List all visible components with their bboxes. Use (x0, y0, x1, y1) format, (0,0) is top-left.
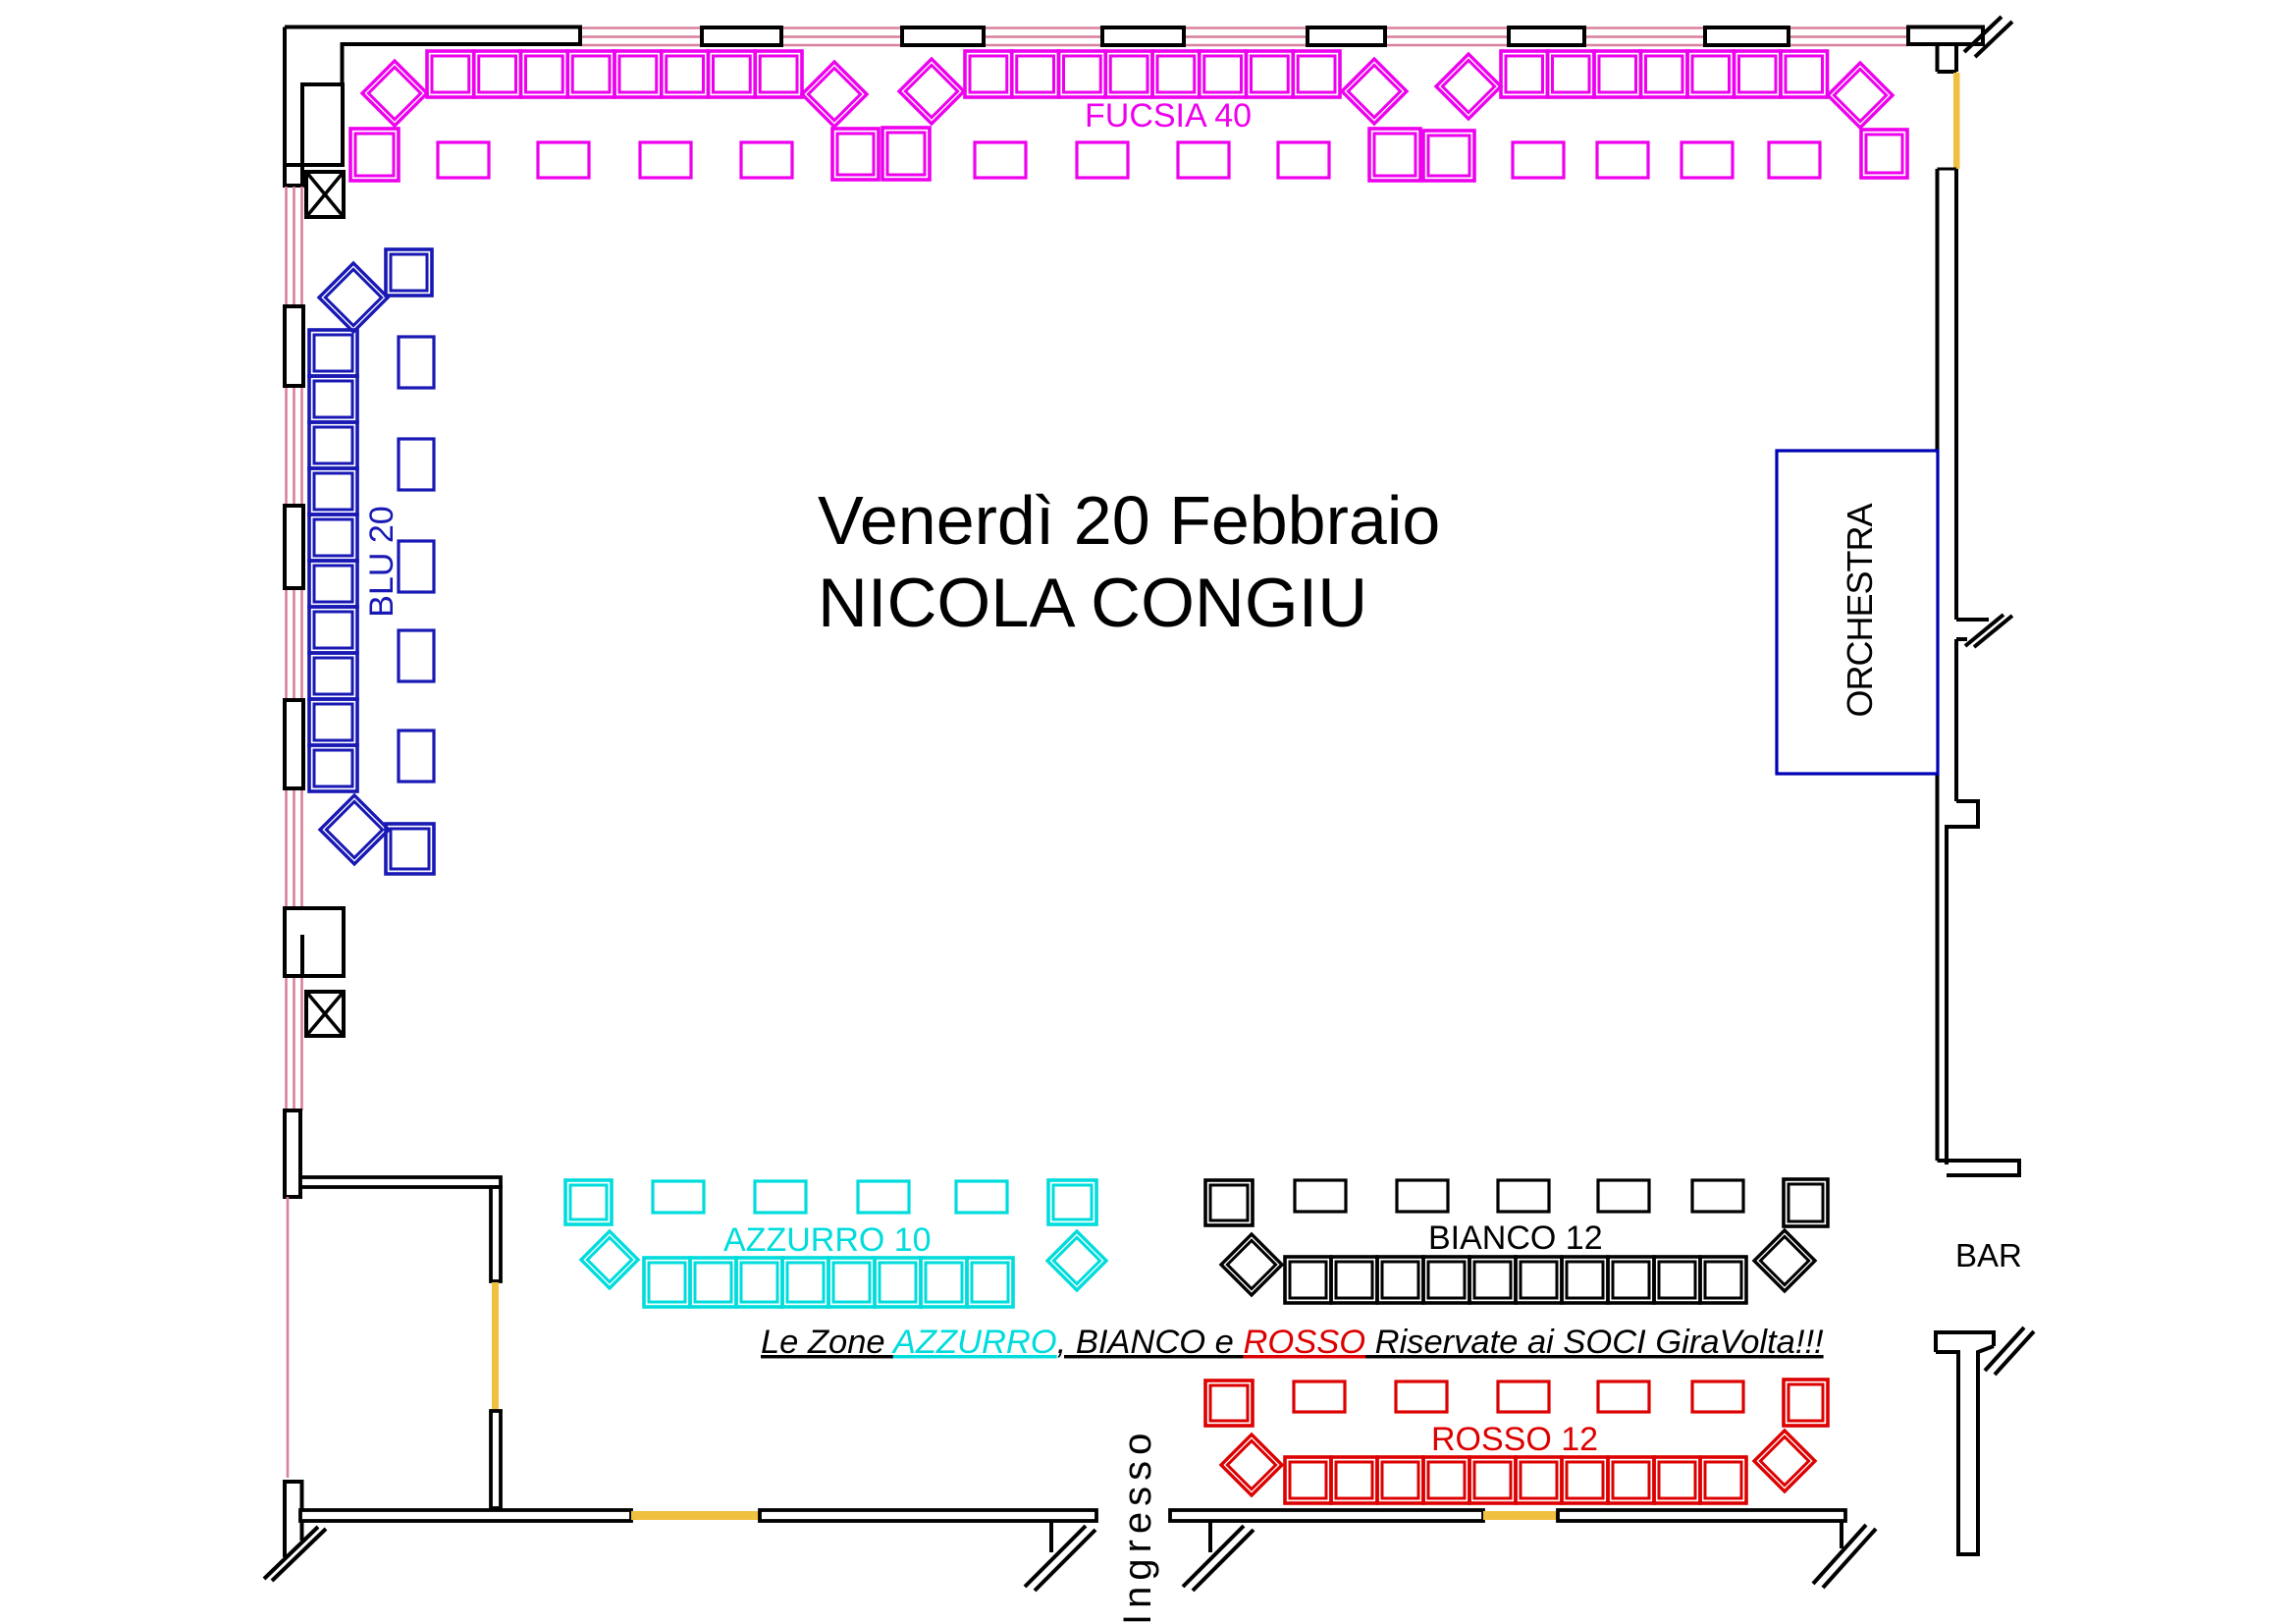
svg-text:Ingresso: Ingresso (1116, 1428, 1159, 1624)
svg-text:NICOLA CONGIU: NICOLA CONGIU (818, 564, 1367, 641)
svg-text:ORCHESTRA: ORCHESTRA (1840, 504, 1880, 718)
svg-text:BAR: BAR (1955, 1237, 2022, 1273)
svg-text:ROSSO 12: ROSSO 12 (1431, 1421, 1598, 1458)
svg-text:FUCSIA 40: FUCSIA 40 (1085, 97, 1252, 135)
svg-text:Le Zone AZZURRO, BIANCO e ROSS: Le Zone AZZURRO, BIANCO e ROSSO Riservat… (761, 1324, 1824, 1361)
svg-text:AZZURRO 10: AZZURRO 10 (723, 1221, 932, 1259)
svg-text:BIANCO 12: BIANCO 12 (1428, 1219, 1603, 1257)
svg-text:BLU 20: BLU 20 (363, 506, 400, 617)
svg-text:Venerdì 20 Febbraio: Venerdì 20 Febbraio (818, 482, 1440, 559)
